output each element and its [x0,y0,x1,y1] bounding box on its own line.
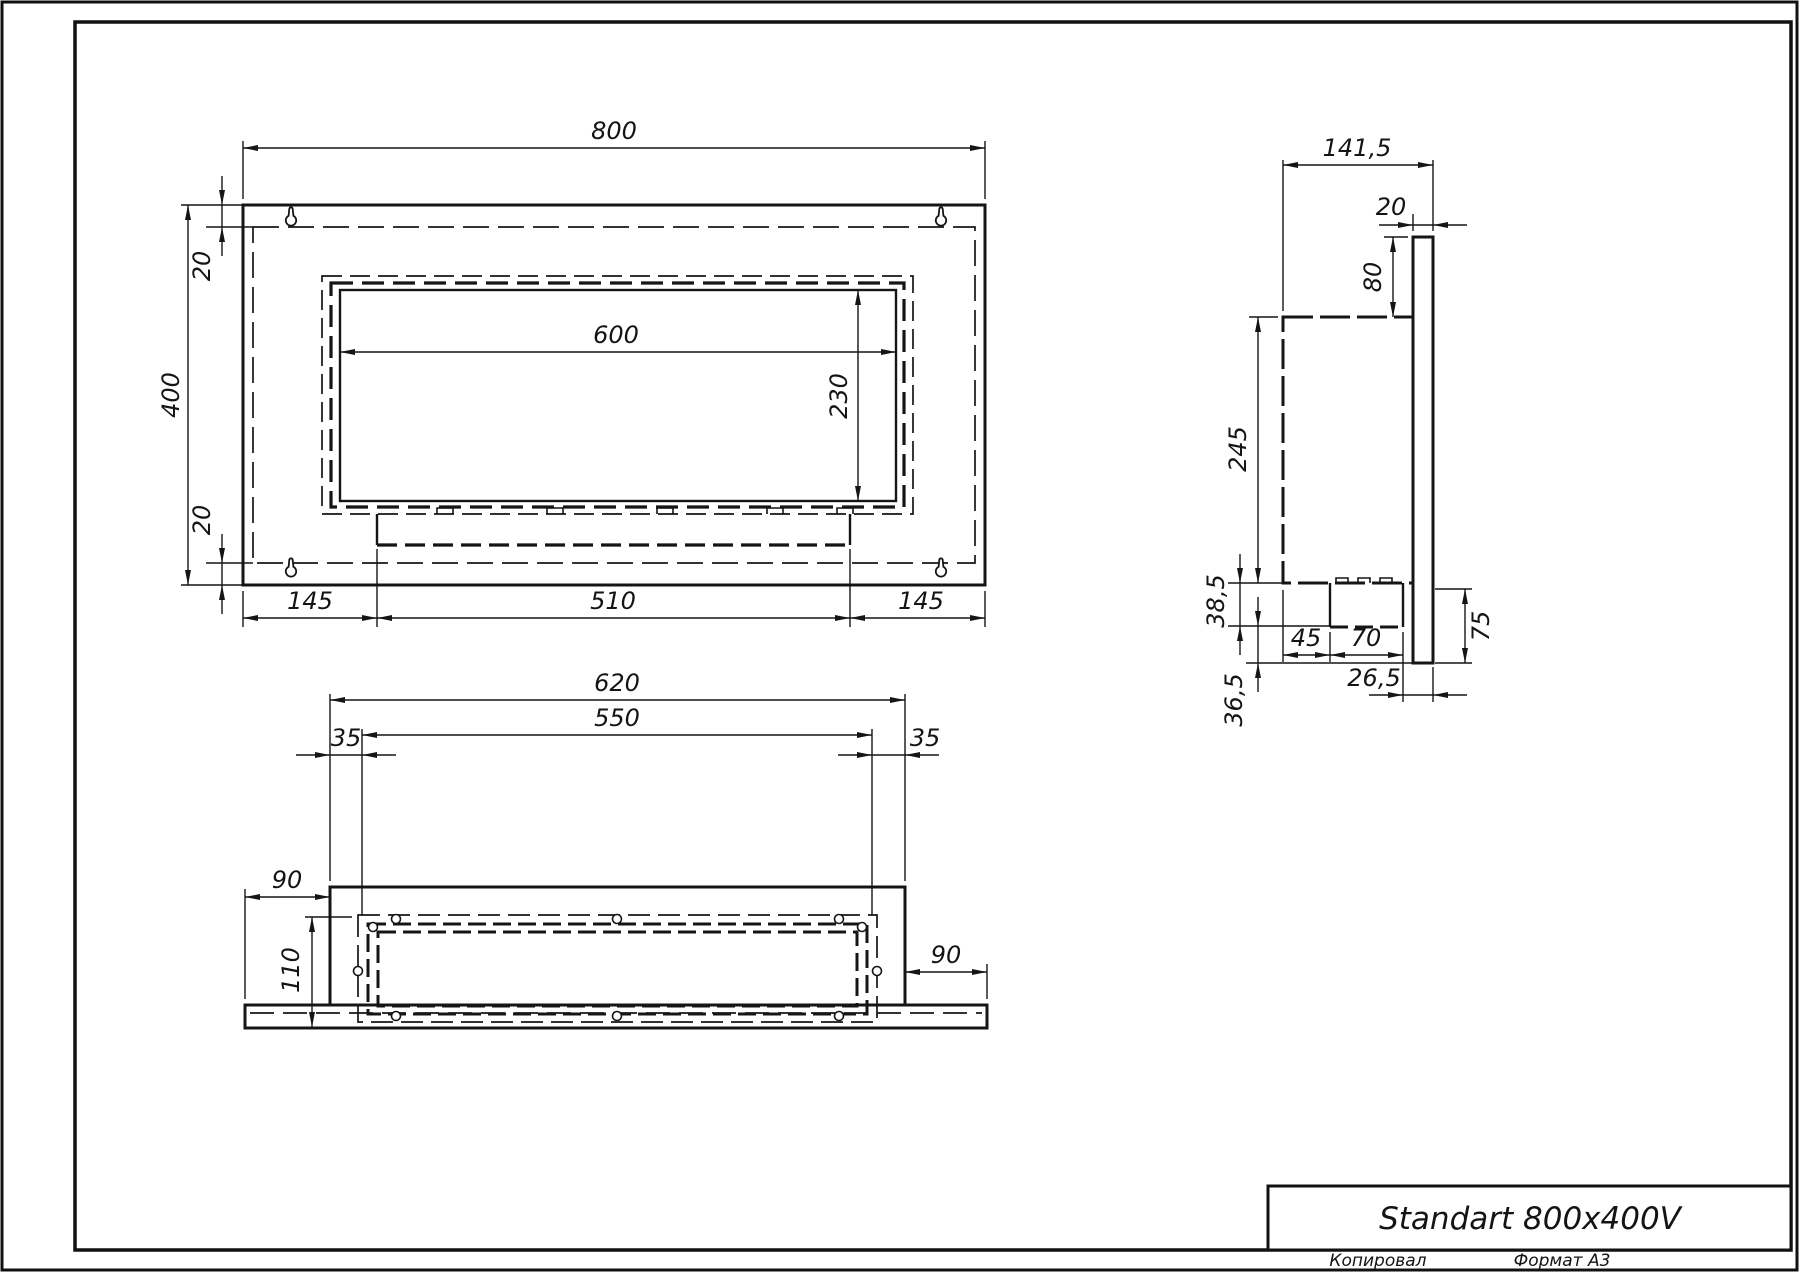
dim-arrow [1388,652,1403,658]
dim-arrow [315,752,330,758]
front-wall-dashed [253,227,975,563]
mount-hole [369,923,378,932]
dim-arrow [972,969,987,975]
dim-arrow [377,615,392,621]
mount-hole [873,967,882,976]
dim-arrow [1462,589,1468,604]
dim-label-left_inset: 35 [331,724,362,752]
dim-label-right_margin: 145 [898,587,944,615]
dim-arrow [1255,317,1261,332]
dim-arrow [1418,162,1433,168]
dim-label-opening_width: 600 [593,321,639,349]
dim-label-overall_depth: 141,5 [1323,134,1392,162]
dim-arrow [1388,692,1403,698]
dim-arrow [309,1012,315,1027]
dim-label-left_flange: 90 [272,866,303,894]
dim-arrow [890,697,905,703]
dim-label-body_depth: 110 [277,947,305,993]
keyhole-slot [936,558,946,576]
mount-hole [613,915,622,924]
sheet-frame-layer: Standart 800x400V Копировал Формат А3 [2,2,1797,1271]
drawing-canvas: Standart 800x400V Копировал Формат А3 80… [0,0,1800,1273]
dim-arrow [857,752,872,758]
dim-label-right_inset: 35 [910,724,941,752]
clip-tab [657,508,673,514]
dim-arrow [905,752,920,758]
mount-hole [392,1012,401,1021]
dim-arrow [855,290,861,305]
clip-tab [767,508,783,514]
mount-hole [613,1012,622,1021]
dim-arrow [835,615,850,621]
dim-arrow [1237,568,1243,583]
dim-arrow [185,570,191,585]
dim-label-tray_width: 70 [1351,624,1382,652]
mount-hole [835,1012,844,1021]
dim-label-top_offset: 80 [1359,262,1387,293]
dim-arrow [1390,237,1396,252]
dim-arrow [1390,302,1396,317]
mount-hole [835,915,844,924]
dim-label-overall_height: 400 [157,372,185,418]
bottom-body [330,887,905,1005]
front-view: 8004002020600230145510145 [157,117,985,627]
dim-arrow [309,917,315,932]
dim-label-burner_width: 510 [590,587,636,615]
drawing-title: Standart 800x400V [1379,1201,1684,1237]
dim-arrow [1237,626,1243,641]
page-edge [2,2,1797,1270]
bottom-inner-dashed-inner [378,932,857,1006]
keyhole-slot [286,558,296,576]
dim-arrow [1255,568,1261,583]
dim-arrow [219,190,225,205]
front-opening-flange [331,283,904,507]
dim-label-right_flange: 90 [931,941,962,969]
copied-label: Копировал [1329,1251,1426,1271]
dim-arrow [1433,222,1448,228]
dim-label-plate_thickness: 20 [1376,193,1407,221]
dim-arrow [362,615,377,621]
clip-tab [547,508,563,514]
dim-arrow [340,349,355,355]
dim-arrow [185,205,191,220]
dim-arrow [1330,652,1345,658]
keyhole-slot [936,207,946,225]
side-body [1283,317,1413,583]
clip-tab [437,508,453,514]
dim-arrow [362,752,377,758]
dim-label-front_gap: 45 [1291,624,1322,652]
dim-label-overall_width: 800 [591,117,637,145]
dim-arrow [1462,648,1468,663]
dim-label-inner_width: 550 [594,704,640,732]
dim-arrow [1315,652,1330,658]
dim-arrow [219,227,225,242]
dim-arrow [1433,692,1448,698]
dim-label-lower_offset: 36,5 [1220,673,1248,726]
front-outline [243,205,985,585]
bottom-view: 62055035359090110 [245,669,987,1028]
keyhole-slot [286,207,296,225]
dim-label-top_inset: 20 [188,251,216,282]
side-view: 141,5208024538,536,545707526,5 [1202,134,1495,727]
dim-arrow [362,732,377,738]
dim-label-rear_gap: 26,5 [1347,664,1400,692]
mount-hole [392,915,401,924]
bottom-inner-dashed-mid [368,924,867,1014]
dim-label-tray_depth: 38,5 [1202,574,1230,627]
dim-arrow [243,145,258,151]
mount-hole [858,923,867,932]
dim-arrow [1398,222,1413,228]
format-label: Формат А3 [1514,1251,1611,1271]
dim-arrow [315,894,330,900]
clip-tab [837,508,853,514]
dim-arrow [857,732,872,738]
dim-arrow [1255,663,1261,678]
dim-arrow [243,615,258,621]
dim-arrow [905,969,920,975]
dim-arrow [219,585,225,600]
dim-label-body_height: 245 [1224,426,1252,472]
dim-label-opening_height: 230 [825,373,853,419]
dim-arrow [970,145,985,151]
drawing-sheet: Standart 800x400V Копировал Формат А3 80… [0,0,1800,1273]
dim-arrow [1255,611,1261,626]
side-back-plate [1413,237,1433,663]
dim-arrow [219,548,225,563]
dim-arrow [1283,652,1298,658]
dim-arrow [245,894,260,900]
dim-arrow [850,615,865,621]
dim-label-body_width: 620 [594,669,640,697]
dim-label-left_margin: 145 [287,587,333,615]
dim-arrow [970,615,985,621]
dim-arrow [855,486,861,501]
dim-label-bottom_inset: 20 [188,505,216,536]
dim-arrow [881,349,896,355]
mount-hole [354,967,363,976]
dim-label-bottom_flange: 75 [1467,611,1495,642]
dim-arrow [1283,162,1298,168]
dim-arrow [330,697,345,703]
